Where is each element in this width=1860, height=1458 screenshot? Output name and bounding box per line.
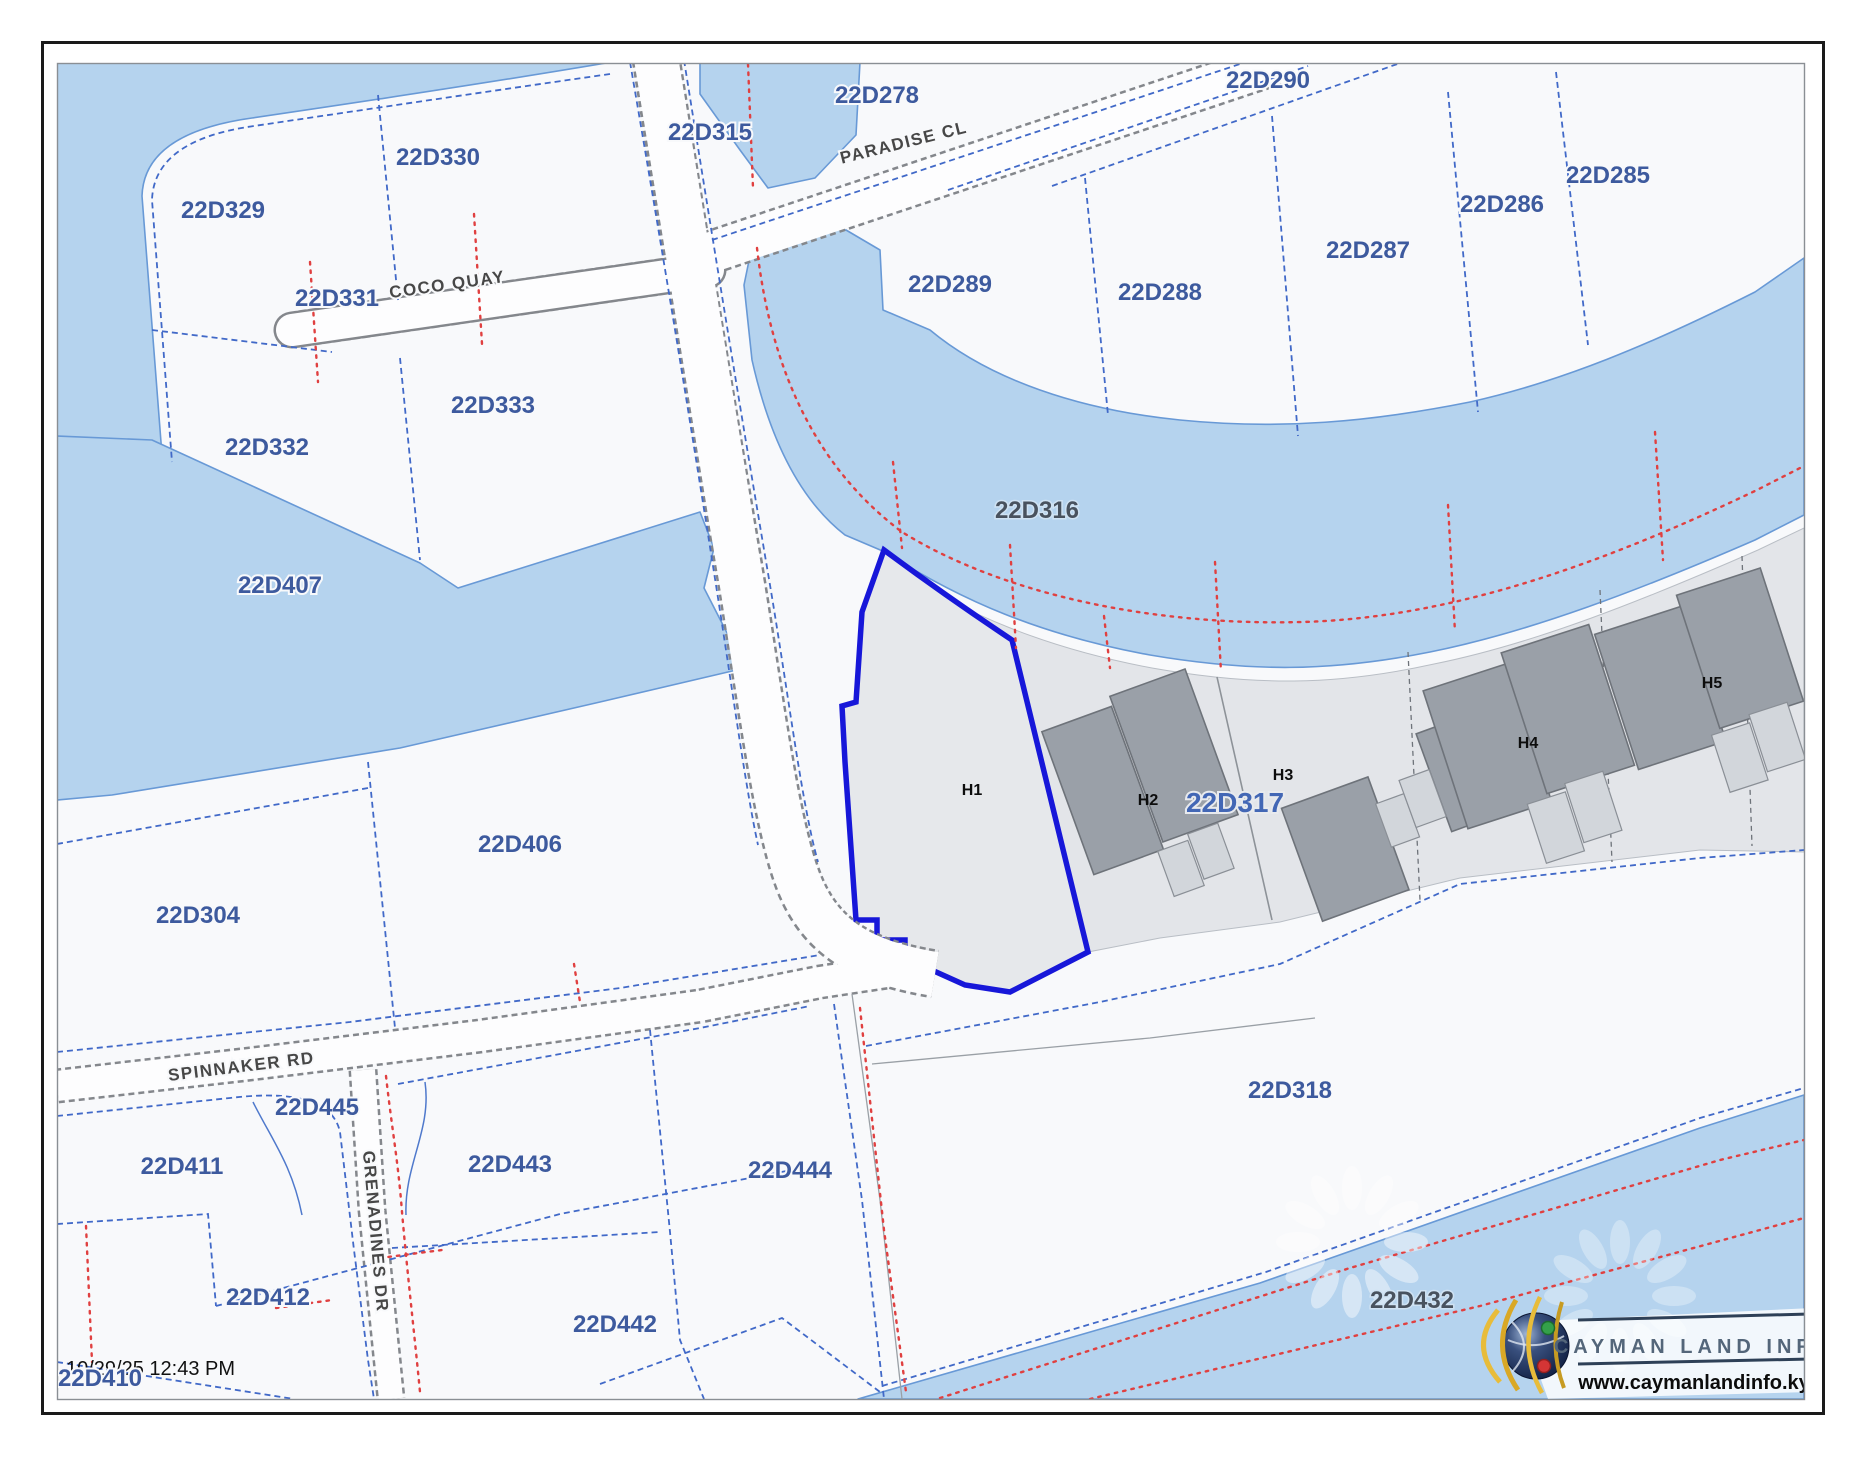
parcel-label-22d331: 22D331 [295, 285, 379, 312]
house-label-h3: H3 [1273, 767, 1294, 784]
parcel-label-22d289: 22D289 [908, 271, 992, 298]
parcel-label-22d432: 22D432 [1370, 1287, 1454, 1314]
parcel-label-22d442: 22D442 [573, 1311, 657, 1338]
parcel-label-22d315: 22D315 [668, 119, 752, 146]
house-label-h5: H5 [1702, 675, 1723, 692]
parcel-label-22d407: 22D407 [238, 572, 322, 599]
parcel-label-22d412: 22D412 [226, 1284, 310, 1311]
parcel-label-22d411: 22D411 [141, 1153, 224, 1180]
parcel-label-22d443: 22D443 [468, 1151, 552, 1178]
parcel-label-22d286: 22D286 [1460, 191, 1544, 218]
watermark-petal [1384, 1232, 1428, 1252]
parcel-label-22d316: 22D316 [995, 497, 1079, 524]
parcel-label-22d445: 22D445 [275, 1094, 359, 1121]
parcel-label-22d444: 22D444 [748, 1157, 833, 1184]
parcel-label-22d410: 22D410 [58, 1365, 142, 1392]
parcel-label-22d285: 22D285 [1566, 162, 1650, 189]
parcel-label-22d317: 22D317 [1186, 787, 1284, 818]
map-canvas[interactable]: CAYMAN LAND INFO www.caymanlandinfo.ky 1… [0, 0, 1860, 1458]
parcel-label-22d318: 22D318 [1248, 1077, 1332, 1104]
watermark-petal [1652, 1286, 1696, 1306]
parcel-label-22d329: 22D329 [181, 197, 265, 224]
watermark-petal [1610, 1220, 1630, 1264]
parcel-label-22d278: 22D278 [835, 82, 919, 109]
logo-org-text: CAYMAN LAND INFO [1554, 1336, 1834, 1358]
cayman-land-info-map-page: CAYMAN LAND INFO www.caymanlandinfo.ky 1… [0, 0, 1860, 1458]
parcel-label-22d287: 22D287 [1326, 237, 1410, 264]
parcel-label-22d332: 22D332 [225, 434, 309, 461]
watermark-petal [1276, 1232, 1320, 1252]
parcel-label-22d290: 22D290 [1226, 67, 1310, 94]
watermark-petal [1544, 1286, 1588, 1306]
house-label-h2: H2 [1138, 792, 1159, 809]
house-label-h1: H1 [962, 782, 983, 799]
parcel-label-22d330: 22D330 [396, 144, 480, 171]
house-label-h4: H4 [1518, 735, 1539, 752]
parcel-label-22d288: 22D288 [1118, 279, 1202, 306]
watermark-petal [1342, 1166, 1362, 1210]
parcel-label-22d406: 22D406 [478, 831, 562, 858]
watermark-petal [1342, 1274, 1362, 1318]
parcel-label-22d304: 22D304 [156, 902, 241, 929]
parcel-label-22d333: 22D333 [451, 392, 535, 419]
logo-website-link[interactable]: www.caymanlandinfo.ky [1577, 1372, 1810, 1394]
